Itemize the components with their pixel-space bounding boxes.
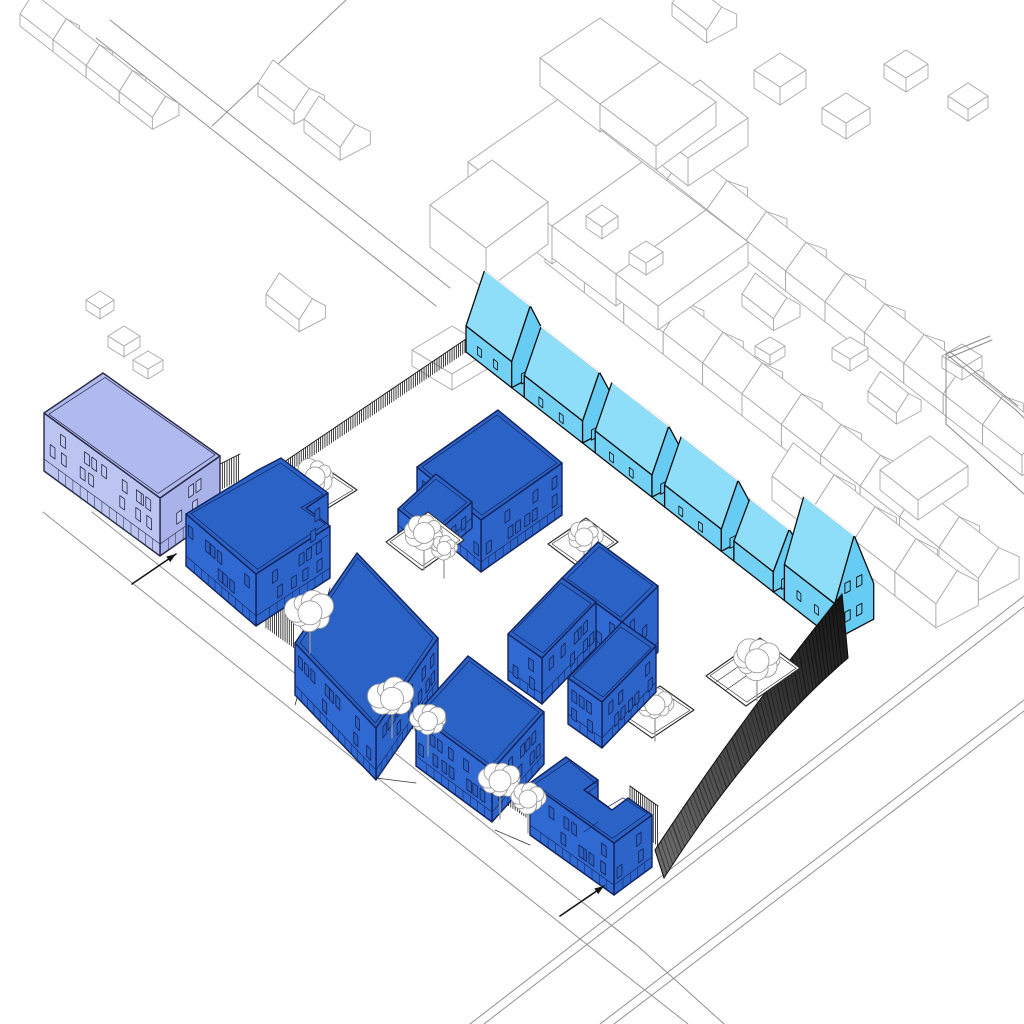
- dark-boundary-wall: [655, 594, 848, 878]
- proposed-buildings: [186, 410, 658, 895]
- site-axon-drawing: [0, 0, 1024, 1024]
- tree: [432, 536, 458, 578]
- entrance-arrow-south: [560, 886, 604, 916]
- axonometric-site-diagram: [0, 0, 1024, 1024]
- proposed-building-f: [530, 757, 652, 895]
- entrance-arrow-west: [132, 554, 176, 584]
- proposed-building-c: [386, 410, 562, 578]
